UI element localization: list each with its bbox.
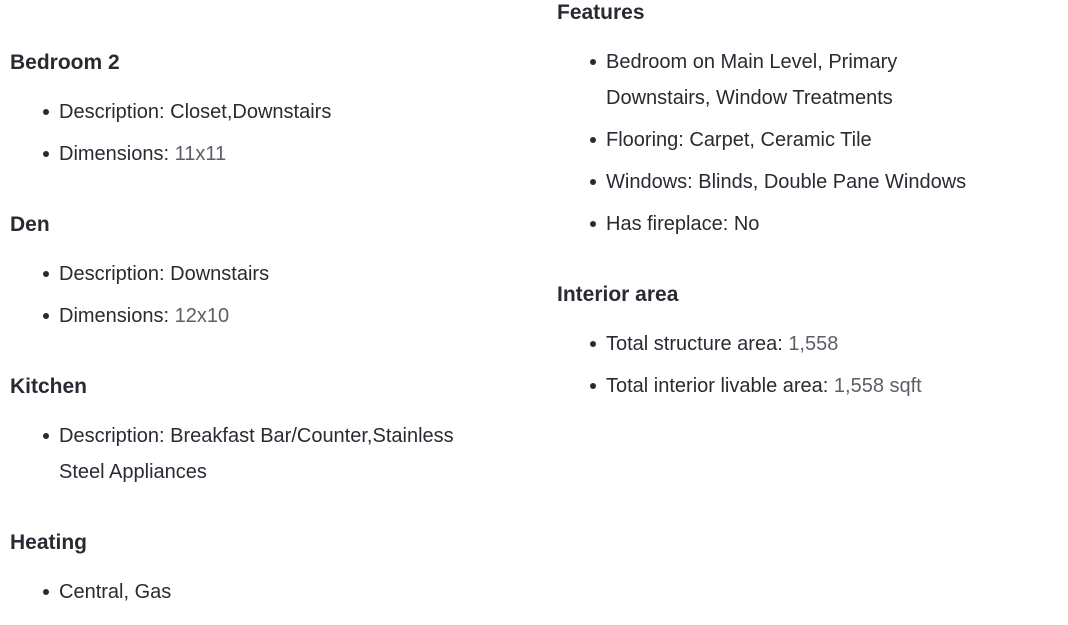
list-item: Description: Closet,Downstairs — [59, 94, 469, 130]
section-list: Total structure area: 1,558Total interio… — [557, 326, 1068, 404]
section-list: Description: DownstairsDimensions: 12x10 — [10, 256, 547, 334]
facts-section-den: DenDescription: DownstairsDimensions: 12… — [10, 212, 547, 334]
item-text: Has fireplace: No — [606, 213, 759, 235]
item-text: Description: Downstairs — [59, 263, 269, 285]
facts-section-bedroom-2: Bedroom 2Description: Closet,DownstairsD… — [10, 50, 547, 172]
list-item: Dimensions: 12x10 — [59, 298, 469, 334]
section-list: Description: Breakfast Bar/Counter,Stain… — [10, 418, 547, 490]
item-text: Flooring: Carpet, Ceramic Tile — [606, 129, 872, 151]
list-item: Dimensions: 11x11 — [59, 136, 469, 172]
item-text: Dimensions: — [59, 143, 175, 165]
section-title: Bedroom 2 — [10, 50, 547, 76]
item-text: Description: Closet,Downstairs — [59, 101, 331, 123]
section-title: Heating — [10, 530, 547, 556]
list-item: Windows: Blinds, Double Pane Windows — [606, 164, 996, 200]
facts-column-right: FeaturesBedroom on Main Level, Primary D… — [547, 0, 1068, 616]
facts-section-interior-area: Interior areaTotal structure area: 1,558… — [557, 282, 1068, 404]
section-list: Bedroom on Main Level, Primary Downstair… — [557, 44, 1068, 242]
list-item: Flooring: Carpet, Ceramic Tile — [606, 122, 996, 158]
item-text: Total interior livable area: — [606, 375, 834, 397]
facts-and-features: Bedroom 2Description: Closet,DownstairsD… — [0, 0, 1068, 616]
facts-section-heating: HeatingCentral, Gas — [10, 530, 547, 610]
list-item: Description: Downstairs — [59, 256, 469, 292]
item-text: Dimensions: — [59, 305, 175, 327]
item-text: Windows: Blinds, Double Pane Windows — [606, 171, 966, 193]
list-item: Bedroom on Main Level, Primary Downstair… — [606, 44, 996, 116]
list-item: Description: Breakfast Bar/Counter,Stain… — [59, 418, 469, 490]
item-text: Total structure area: — [606, 333, 788, 355]
facts-section-kitchen: KitchenDescription: Breakfast Bar/Counte… — [10, 374, 547, 490]
section-title: Den — [10, 212, 547, 238]
item-value: 11x11 — [175, 143, 227, 165]
list-item: Central, Gas — [59, 574, 469, 610]
item-value: 1,558 sqft — [834, 375, 922, 397]
section-title: Interior area — [557, 282, 1068, 308]
section-list: Description: Closet,DownstairsDimensions… — [10, 94, 547, 172]
list-item: Total structure area: 1,558 — [606, 326, 996, 362]
list-item: Total interior livable area: 1,558 sqft — [606, 368, 996, 404]
item-text: Central, Gas — [59, 581, 171, 603]
item-value: 1,558 — [788, 333, 838, 355]
list-item: Has fireplace: No — [606, 206, 996, 242]
item-value: 12x10 — [175, 305, 230, 327]
facts-column-left: Bedroom 2Description: Closet,DownstairsD… — [0, 0, 547, 616]
item-text: Description: Breakfast Bar/Counter,Stain… — [59, 425, 454, 483]
section-list: Central, Gas — [10, 574, 547, 610]
section-title: Kitchen — [10, 374, 547, 400]
facts-section-features: FeaturesBedroom on Main Level, Primary D… — [557, 0, 1068, 242]
item-text: Bedroom on Main Level, Primary Downstair… — [606, 51, 897, 109]
section-title: Features — [557, 0, 1068, 26]
